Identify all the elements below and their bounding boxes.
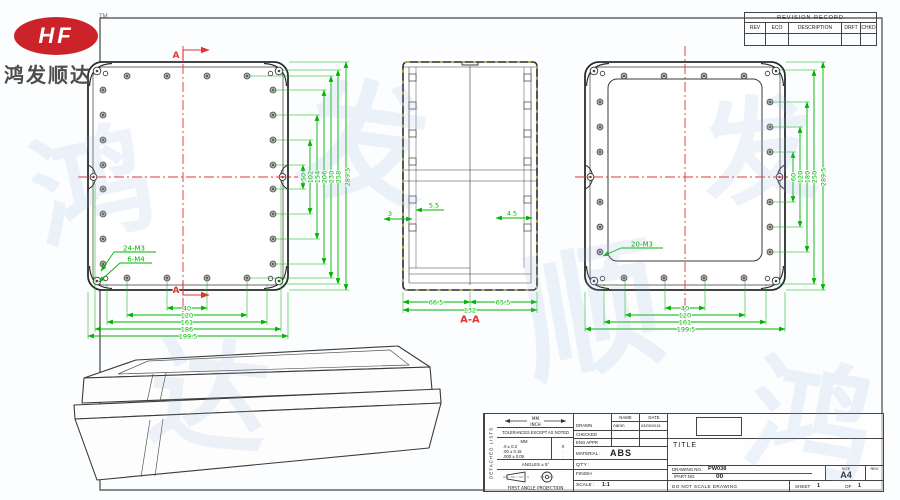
finish-label: FINISH	[576, 472, 666, 480]
name-header: NAME	[612, 414, 639, 422]
dim-label: 132	[464, 306, 476, 314]
projection-cell: FIRST ANGLE PROJECTION	[497, 470, 574, 491]
dim-label: 4.5	[507, 210, 517, 218]
do-not-scale-label: DO NOT SCALE DRAWING	[672, 484, 737, 489]
company-name-chinese: 鸿发顺达	[4, 59, 104, 88]
logo-brand-text: HF	[38, 23, 73, 49]
company-logo: HF	[14, 17, 98, 55]
dim-label: 258	[335, 171, 343, 183]
size-value: A4	[826, 470, 866, 480]
engineering-drawing-sheet: { "logo": {"brand": "HF", "tm": "TM", "c…	[0, 0, 900, 500]
dim-label: 250	[811, 171, 819, 183]
revision-table: REVISION RECORD REV ECO DESCRIPTION DRFT…	[744, 12, 877, 47]
tolerance-table: MM .0 ± 0.3 .00 ± 0.15 .000 ± 0.05 X · ·	[497, 438, 574, 460]
revision-empty-row	[841, 33, 861, 46]
thread-callout-24-m3: 24-M3	[123, 245, 145, 253]
date-header: DATE	[640, 414, 668, 422]
units-bottom: INCH	[530, 422, 540, 427]
logo-trademark: TM	[99, 14, 108, 20]
isometric-view	[74, 346, 441, 480]
dim-label: 199.5	[179, 332, 198, 340]
approvals-column: NAME DATE DRAWN Aaron 03/05/2015 CHECKED…	[574, 414, 668, 491]
drawn-date: 03/05/2015	[641, 423, 668, 430]
scale-label: SCALE :	[576, 483, 594, 488]
title-region: TITLE DRAWING NO. PW038 /PART NO. 00 SIZ…	[668, 414, 883, 491]
tolerance-row: .000 ± 0.05	[503, 454, 551, 459]
title-label: TITLE	[673, 442, 697, 449]
title-block: DETACHED LISTS MM INCH TOLERANCES EXCEPT…	[483, 413, 884, 492]
tolerance-mark: ·	[552, 453, 574, 459]
revision-empty-row	[765, 33, 789, 46]
material-row: MATERIAL : ABS	[574, 447, 668, 460]
dim-label: 65.5	[496, 298, 510, 306]
drawing-no-cell: DRAWING NO. PW038 /PART NO. 00	[668, 466, 826, 480]
section-title-a-a: A-A	[460, 315, 480, 326]
section-label-a-bottom: A	[173, 286, 180, 296]
title-cell: TITLE	[668, 438, 883, 466]
drawing-no-value: PW038	[708, 466, 726, 472]
dim-label: 289.5	[820, 168, 828, 187]
sheet-of-value: 1	[858, 483, 861, 489]
scale-value: 1:1	[602, 482, 610, 488]
drawn-label: DRAWN	[576, 423, 610, 430]
rev-cell: REV	[866, 466, 883, 480]
tolerance-column: MM INCH TOLERANCES EXCEPT AS NOTED MM .0…	[497, 414, 574, 491]
drawn-name: Aaron	[613, 423, 639, 430]
part-no-label: /PART NO.	[674, 474, 695, 479]
section-view	[403, 62, 537, 290]
thread-callout-20-m3: 20-M3	[631, 241, 653, 249]
right-view	[575, 46, 795, 320]
tolerance-note: TOLERANCES EXCEPT AS NOTED	[497, 428, 574, 438]
sheet-of-label: OF	[845, 484, 851, 489]
sheet-cell: SHEET 1 OF 1	[790, 480, 883, 491]
part-no-value: 00	[716, 473, 723, 480]
drawing-no-label: DRAWING NO.	[672, 467, 702, 472]
title-block-logo-box	[696, 417, 742, 436]
units-top: MM	[532, 416, 540, 421]
section-label-a-top: A	[173, 51, 180, 61]
dim-label: 5.5	[429, 202, 439, 210]
dim-label: 66.5	[429, 298, 443, 306]
angles-tolerance: ANGLES ± 5°	[497, 460, 574, 470]
projection-label: FIRST ANGLE PROJECTION	[508, 486, 564, 492]
revision-empty-row	[788, 33, 842, 46]
title-block-side-label: DETACHED LISTS	[484, 414, 497, 491]
rev-label: REV	[866, 466, 883, 471]
do-not-scale-cell: DO NOT SCALE DRAWING	[668, 480, 790, 491]
size-cell: SIZE A4	[826, 466, 866, 480]
dim-label: 289.5	[344, 168, 352, 187]
scale-row: SCALE : 1:1	[574, 481, 668, 491]
dim-arrows-icon: MM INCH	[497, 414, 574, 428]
sheet-label: SHEET	[795, 484, 810, 489]
revision-empty-row	[744, 33, 766, 46]
dim-label: 3	[388, 210, 392, 218]
material-label: MATERIAL :	[576, 451, 601, 456]
thread-callout-6-m4: 6-M4	[127, 256, 145, 264]
sheet-value: 1	[817, 483, 820, 489]
row-divider	[574, 438, 668, 439]
left-view	[88, 62, 288, 290]
first-angle-projection-icon: FIRST ANGLE PROJECTION	[497, 470, 574, 491]
revision-empty-row	[860, 33, 877, 46]
row-divider	[574, 430, 668, 431]
material-value: ABS	[610, 448, 632, 458]
dim-label: 199.5	[677, 325, 696, 333]
row-divider	[574, 469, 668, 470]
